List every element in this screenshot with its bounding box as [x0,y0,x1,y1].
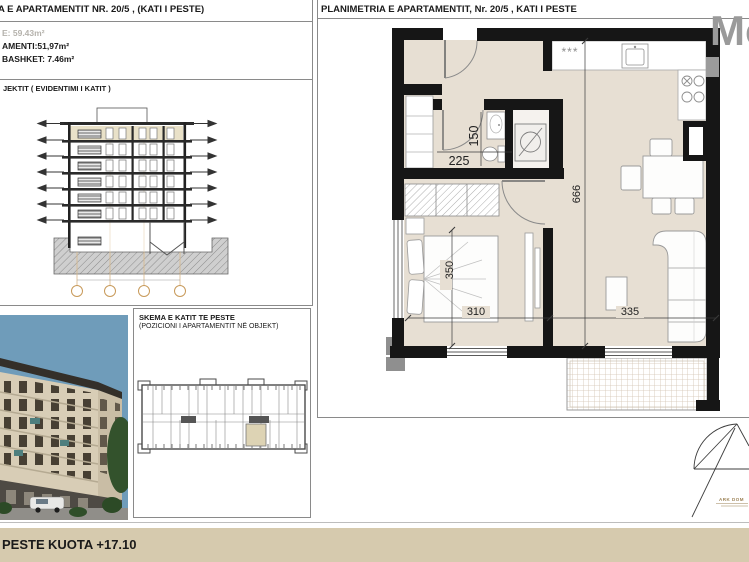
nightstand [406,218,424,234]
section-building [60,108,194,255]
section-elevator [150,222,184,255]
closet-entry [406,96,433,168]
stamp-firm-name: ARK DOM [719,497,744,502]
stamp-logo-lines [692,424,749,517]
keyplan-apartment-highlight [246,424,266,446]
area-common: BASHKET: 7.46m² [2,54,74,64]
footer-elevation-label: KUOTA +17.10 [48,537,137,552]
building-section-drawing [0,80,318,306]
keyplan-stair-core [181,416,196,423]
drawing-sheet: { "title_block": { "line1": "A E APARTAM… [0,0,749,562]
keyplan-title: SKEMA E KATIT TE PESTE [139,313,235,322]
sheet-title: A E APARTAMENTIT NR. 20/5 , (KATI I PEST… [0,4,204,15]
keyplan-outline [138,379,307,453]
stamp-underlines [716,504,748,507]
dim-apartment-depth: 666 [571,185,583,203]
section-stairs [78,130,101,245]
section-grid-bubbles [72,286,186,297]
shaft-grey [706,57,719,77]
kitchen-symbol: *** [561,45,578,59]
sheet-bottom-line [0,522,749,523]
wardrobe [405,184,499,216]
kitchen-sink-icon [622,44,648,68]
building-photo [0,315,128,520]
watermark-logo: Mo [710,10,749,52]
balcony [567,358,707,410]
keyplan-subtitle: (POZICIONI I APARTAMENTIT NË OBJEKT) [139,323,279,330]
architect-stamp: ARK DOM [660,418,749,522]
bathroom-sink-icon [487,112,505,139]
dim-living-width: 335 [621,306,639,318]
dim-bedroom-width: 310 [467,306,485,318]
washing-machine-icon [515,124,546,161]
area-apartment: AMENTI:51,97m² [2,41,69,51]
keyplan-drawing [133,335,311,515]
footer-floor-label: PESTE [2,537,45,552]
keyplan-stair-core [249,416,269,423]
toilet-icon [483,146,506,162]
dim-bath-height: 150 [467,126,481,147]
dim-bath-width: 225 [449,154,470,168]
plan-header: PLANIMETRIA E APARTAMENTIT, Nr. 20/5 , K… [321,4,577,15]
dim-bedroom-depth: 350 [444,261,456,279]
area-total: E: 59.43m² [2,28,45,38]
column-shaft [683,121,709,161]
apartment-floor-plan: *** [317,19,749,417]
